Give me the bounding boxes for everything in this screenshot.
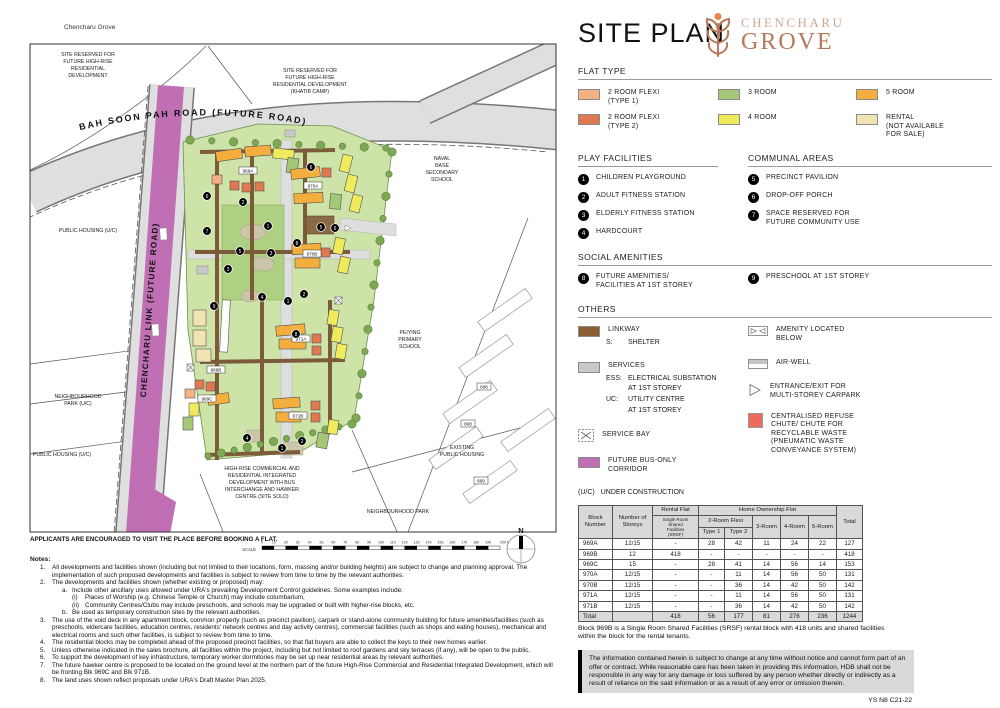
marker-4: 4 [578,228,589,239]
scale-tick: 110 [390,541,396,545]
table-row: 971B12/15--36144250142 [579,601,863,611]
site-plan-map: Chencharu Grove [0,0,570,575]
building [193,330,206,346]
building [195,380,204,389]
reference-code: YS N8 C21-22 [578,697,912,704]
tree [362,348,368,354]
tree [273,139,281,147]
2room-flexi-1-swatch [578,89,600,100]
scale-segment [357,546,369,550]
svg-text:NEIGHBOURHOOD PARK: NEIGHBOURHOOD PARK [367,509,430,515]
tree [316,141,324,149]
block-label: 971B [293,414,304,419]
scale-segment [381,546,393,550]
tree [296,141,302,147]
facility-marker-number: 6 [310,165,313,171]
scale-segment [322,546,334,550]
table-total-row: Total41856177812762361244 [579,611,863,621]
map-project-label: Chencharu Grove [64,24,116,31]
legend-item-4room: 4 ROOM [718,114,856,140]
building [183,417,193,430]
building [316,432,329,449]
legend-item-space-reserved: 7SPACE RESERVED FORFUTURE COMMUNITY USE [748,210,992,227]
brand-name: CHENCHARU GROVE [741,16,844,54]
note-item: (ii)Community Centres/Clubs may include … [30,602,560,610]
rental-swatch [856,114,878,125]
scale-segment [274,546,286,550]
svg-text:SCALE: SCALE [242,547,256,552]
tree [360,143,368,151]
tree [243,443,251,451]
scale-tick: 120 [402,541,408,545]
building [329,194,341,210]
legend-item-linkway: LINKWAY [578,326,718,337]
table-row: 970A12/15--11145650131 [579,570,863,580]
table-row: 969C15-2841145614153 [579,559,863,569]
tree [257,441,263,447]
tree [231,447,237,453]
facility-marker-number: 2 [242,200,245,206]
services-swatch [578,362,600,373]
building [189,403,199,416]
table-row: 970B12/15--36144250142 [579,580,863,590]
building [311,413,320,422]
2room-flexi-2-swatch [578,114,600,125]
building [312,334,321,343]
note-item: 6.To support the development of key infr… [30,654,560,662]
scale-tick: 170 [461,541,467,545]
brand-logo: CHENCHARU GROVE [700,12,844,58]
scale-segment [488,546,500,550]
uc-subrow: UC:UTILITY CENTRE [606,396,718,405]
scale-segment [464,546,476,550]
marker-2: 2 [578,192,589,203]
facility-marker-number: 6 [206,194,209,200]
facility-marker-number: 3 [227,267,230,273]
building [193,310,206,326]
tree [310,430,316,436]
marker-7: 7 [748,210,759,221]
flat-type-legend: 2 ROOM FLEXI(TYPE 1) 3 ROOM 5 ROOM 2 ROO… [578,89,992,140]
facility-marker-number: 1 [287,299,290,305]
scale-segment [429,546,441,550]
legend-item-services: SERVICES [578,362,718,373]
facility-marker-number: 3 [270,251,273,257]
svg-text:HIGH-RISE COMMERCIAL ANDRESIDE: HIGH-RISE COMMERCIAL ANDRESIDENTIAL INTE… [224,466,300,500]
scale-tick: 100 [378,541,384,545]
table-footnote: Block 969B is a Single Room Shared Facil… [578,625,888,641]
others-left-column: LINKWAY S:SHELTER SERVICES ESS:ELECTRICA… [578,326,718,474]
building [322,168,331,177]
scale-tick: 130 [414,541,420,545]
facility-marker-number: 4 [261,295,264,301]
tree [252,139,258,145]
facility-marker-number: 7 [206,229,209,235]
scale-segment [262,546,274,550]
building [295,258,320,268]
existing-block-number: 806 [480,385,488,390]
note-item: 1.All developments and facilities shown … [30,564,560,579]
tree [339,143,345,149]
tree [229,138,237,146]
svg-text:PUBLIC HOUSING (U/C): PUBLIC HOUSING (U/C) [59,228,117,234]
scale-tick: 40 [308,541,312,545]
note-item: b.Be used as temporary construction site… [30,609,560,617]
legend-item-refuse-chute: CENTRALISED REFUSECHUTE/ CHUTE FORRECYCL… [748,413,992,456]
scale-segment [369,546,381,550]
notes-heading: Notes: [30,556,560,563]
existing-block-number: 808 [464,422,472,427]
shelter-subrow: S:SHELTER [606,339,718,348]
tree [217,449,225,457]
building [245,145,272,157]
tree [376,236,384,244]
scale-tick: 140 [426,541,432,545]
building [206,382,215,391]
refuse-chute-swatch [748,413,763,428]
legend-item-precinct-pavilion: 5PRECINCT PAVILION [748,174,992,185]
marker-1: 1 [578,174,589,185]
legend-item-service-bay: SERVICE BAY [578,429,718,442]
note-item: 8.The land uses shown reflect proposals … [30,677,560,685]
facility-marker-number: 8 [295,332,298,338]
brand-name-bottom: GROVE [741,30,844,54]
scale-segment [286,546,298,550]
communal-areas-column: COMMUNAL AREAS 5PRECINCT PAVILION 6DROP-… [748,153,992,239]
table-row: 969A12/15-2842112422127 [579,539,863,549]
legend-item-5room: 5 ROOM [856,89,992,106]
air-well-icon [748,359,768,369]
scale-bar: SCALE 0102030405060708090100110120130140… [242,541,518,553]
scale-tick: 30 [296,541,300,545]
scale-tick: 160 [449,541,455,545]
carpark-entrance-icon [748,383,762,397]
scale-tick: 180 [473,541,479,545]
table-row: 969B12418-----418 [579,549,863,559]
scale-tick: 10 [272,541,276,545]
tree [283,435,289,441]
marker-6: 6 [748,192,759,203]
scale-segment [393,546,405,550]
note-item: a.Include other ancillary uses allowed u… [30,587,560,595]
scale-tick: 60 [331,541,335,545]
building [212,175,222,184]
legend-item-bus-corridor: FUTURE BUS-ONLY CORRIDOR [578,457,718,474]
facility-marker-number: 8 [296,241,299,247]
play-facilities-column: PLAY FACILITIES 1CHILDREN PLAYGROUND 2AD… [578,153,718,239]
3room-swatch [718,89,740,100]
legend-item-carpark-entrance: ENTRANCE/EXIT FORMULTI-STOREY CARPARK [748,383,992,400]
tree [348,420,356,428]
scale-segment [417,546,429,550]
facility-marker-number: 2 [303,292,306,298]
disclaimer-box: The information contained herein is subj… [578,650,914,693]
uc-subrow-2: AT 1ST STOREY [606,407,718,416]
scale-segment [441,546,453,550]
building [242,183,251,192]
bus-corridor-swatch [578,457,600,468]
note-item: (i)Places of Worship (e.g. Chinese Templ… [30,594,560,602]
ess-subrow-2: AT 1ST STOREY [606,385,718,394]
tree [386,171,392,177]
note-item: 2.The developments and facilities shown … [30,579,560,587]
scale-segment [452,546,464,550]
tree [370,281,378,289]
legend-item-children-playground: 1CHILDREN PLAYGROUND [578,174,718,185]
scale-tick: 50 [320,541,324,545]
facility-marker-number: 2 [301,439,304,445]
tree [374,260,380,266]
unit-distribution-table: BlockNumberNumber ofStoreysRental FlatHo… [578,505,863,622]
marker-9: 9 [748,273,759,284]
tree [380,215,386,221]
tree-icon [700,12,736,58]
legend-item-rental: RENTAL(NOT AVAILABLEFOR SALE) [856,114,992,140]
tree [269,437,277,445]
linkway-swatch [578,326,600,337]
block-label: 970A [308,184,320,189]
map-caption: APPLICANTS ARE ENCOURAGED TO VISIT THE P… [30,536,278,543]
under-construction-note: (U/C)UNDER CONSTRUCTION [578,489,992,496]
tree [205,453,211,459]
north-label: N [518,526,523,535]
scale-segment [405,546,417,550]
legend-item-2room-flexi-1: 2 ROOM FLEXI(TYPE 1) [578,89,718,106]
scale-tick: 90 [367,541,371,545]
scale-tick: 80 [355,541,359,545]
building [312,346,321,355]
legend-item-air-well: AIR-WELL [748,359,992,369]
scale-tick: 70 [343,541,347,545]
scale-tick: 20 [284,541,288,545]
scale-segment [298,546,310,550]
others-heading: OTHERS [578,304,992,318]
existing-block-number: 809 [477,479,485,484]
notes-section: Notes: 1.All developments and facilities… [30,556,560,684]
others-right-column: AMENITY LOCATEDBELOW AIR-WELL ENTRANCE/E… [748,326,992,474]
legend-item-amenity-below: AMENITY LOCATEDBELOW [748,326,992,343]
building [331,326,343,343]
facility-marker-number: 5 [320,225,323,231]
communal-areas-heading: COMMUNAL AREAS [748,153,992,167]
map-content: 969A969B969C970A970B971A971B 62751334126… [28,44,560,534]
building [276,324,306,336]
building [335,343,347,360]
facility-marker-number: 1 [281,446,284,452]
building [273,397,301,409]
facility-marker-number: 5 [239,249,242,255]
scale-tick: 0 [261,541,263,545]
facility-marker-number: 6 [334,226,337,232]
tree [383,145,389,151]
building [311,401,320,410]
building [196,349,211,362]
block-label: 969B [211,368,222,373]
building [230,181,239,190]
building [185,389,195,398]
scale-segment [310,546,322,550]
scale-segment [333,546,345,550]
legend-item-hardcourt: 4HARDCOURT [578,228,718,239]
building [327,309,339,326]
note-item: 5.Unless otherwise indicated in the sale… [30,647,560,655]
block-label: 969C [202,397,214,402]
building [327,419,339,434]
service-bay-icon [578,429,594,442]
legend-item-drop-off-porch: 6DROP-OFF PORCH [748,192,992,203]
social-amenities-heading: SOCIAL AMENITIES [578,252,992,266]
legend-item-preschool: 9PRESCHOOL AT 1ST STOREY [748,273,992,290]
marker-8: 8 [578,273,589,284]
legend-panel: SITE PLAN CHENCHARU GROVE FLAT TY [578,10,992,704]
table-row: 971A12/15--11145650131 [579,591,863,601]
note-item: 3.The use of the void deck in any apartm… [30,617,560,640]
facility-marker-number: 1 [267,224,270,230]
svg-text:PUBLIC HOUSING (U/C): PUBLIC HOUSING (U/C) [33,452,91,458]
scale-tick: 150 [438,541,444,545]
marker-5: 5 [748,174,759,185]
building [321,248,330,257]
flat-type-heading: FLAT TYPE [578,66,992,80]
4room-swatch [718,114,740,125]
legend-item-3room: 3 ROOM [718,89,856,106]
map-svg: Chencharu Grove [0,0,570,575]
tree [186,136,194,144]
panel-header: SITE PLAN CHENCHARU GROVE [578,10,992,66]
scale-segment [476,546,488,550]
ess-subrow: ESS:ELECTRICAL SUBSTATION [606,375,718,384]
tree [356,393,362,399]
block-label: 969A [243,169,255,174]
note-item: 4.The residential blocks may be complete… [30,639,560,647]
legend-item-2room-flexi-2: 2 ROOM FLEXI(TYPE 2) [578,114,718,140]
building [255,182,264,191]
building [294,192,323,204]
facility-marker-number: 4 [246,436,249,442]
notes-list: 1.All developments and facilities shown … [30,564,560,684]
legend-item-adult-fitness: 2ADULT FITNESS STATION [578,192,718,203]
tree [358,369,366,377]
note-item: 7.The future hawker centre is proposed t… [30,662,560,677]
play-facilities-heading: PLAY FACILITIES [578,153,718,167]
5room-swatch [856,89,878,100]
marker-3: 3 [578,210,589,221]
scale-tick: 190 [485,541,491,545]
svg-text:PEIYINGPRIMARYSCHOOL: PEIYINGPRIMARYSCHOOL [398,330,422,350]
facility-marker-number: 9 [213,304,216,310]
legend-item-future-amenities: 8FUTURE AMENITIES/FACILITIES AT 1ST STOR… [578,273,718,290]
amenity-below-icon [748,326,768,336]
site-plan-page: { "title": "SITE PLAN", "brand": { "top"… [0,0,1000,708]
tree [368,304,374,310]
block-label: 970B [307,252,318,257]
tree [364,325,372,333]
tree [209,138,215,144]
brand-name-top: CHENCHARU [741,16,844,29]
tree [382,192,390,200]
scale-segment [345,546,357,550]
legend-item-elderly-fitness: 3ELDERLY FITNESS STATION [578,210,718,221]
